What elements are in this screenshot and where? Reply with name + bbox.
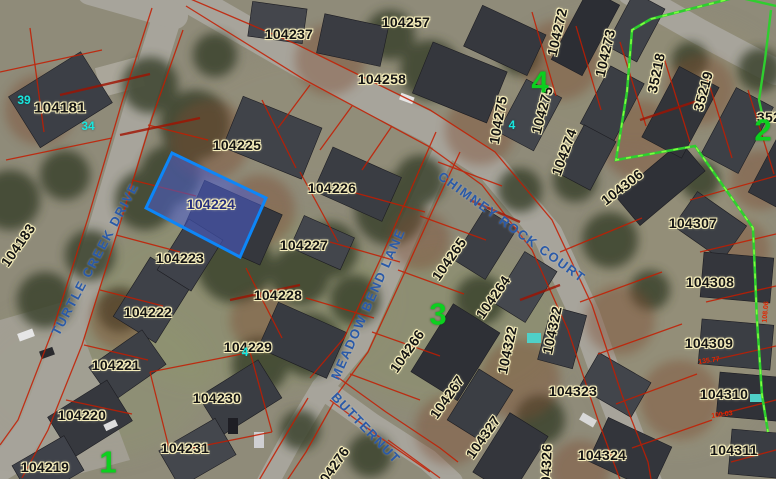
parcel-label-104221[interactable]: 104221	[92, 358, 141, 372]
parcel-label-104311[interactable]: 104311	[710, 443, 758, 457]
parcel-label-104222[interactable]: 104222	[124, 305, 173, 319]
parcel-label-104225[interactable]: 104225	[213, 138, 262, 152]
parcel-label-104229[interactable]: 104229	[224, 340, 273, 354]
parcel-label-104226[interactable]: 104226	[308, 181, 357, 195]
parcel-label-104181[interactable]: 104181	[34, 101, 86, 116]
parcel-label-104326[interactable]: 104326	[538, 444, 554, 479]
parcel-label-104324[interactable]: 104324	[578, 448, 627, 462]
parcel-label-104223[interactable]: 104223	[156, 251, 205, 265]
parcel-label-104308[interactable]: 104308	[686, 275, 735, 289]
parcel-label-352[interactable]: 352	[757, 110, 776, 124]
parcel-label-104323[interactable]: 104323	[549, 384, 598, 398]
parcel-label-104307[interactable]: 104307	[669, 216, 718, 230]
parcel-label-104237[interactable]: 104237	[265, 27, 314, 41]
selected-parcel-label-104224[interactable]: 104224	[187, 197, 236, 211]
parcel-label-104227[interactable]: 104227	[280, 238, 329, 252]
parcel-label-104219[interactable]: 104219	[21, 460, 70, 474]
parcel-label-104310[interactable]: 104310	[700, 387, 749, 401]
parcel-label-104230[interactable]: 104230	[193, 391, 242, 405]
parcel-label-104220[interactable]: 104220	[58, 408, 107, 422]
parcel-label-104228[interactable]: 104228	[254, 288, 303, 302]
parcel-label-104257[interactable]: 104257	[382, 15, 431, 29]
parcel-label-104231[interactable]: 104231	[161, 441, 210, 455]
parcel-label-104309[interactable]: 104309	[685, 336, 734, 350]
map-canvas[interactable]: 1041811041831042371042571042581042251042…	[0, 0, 776, 479]
parcel-label-104258[interactable]: 104258	[358, 72, 407, 86]
